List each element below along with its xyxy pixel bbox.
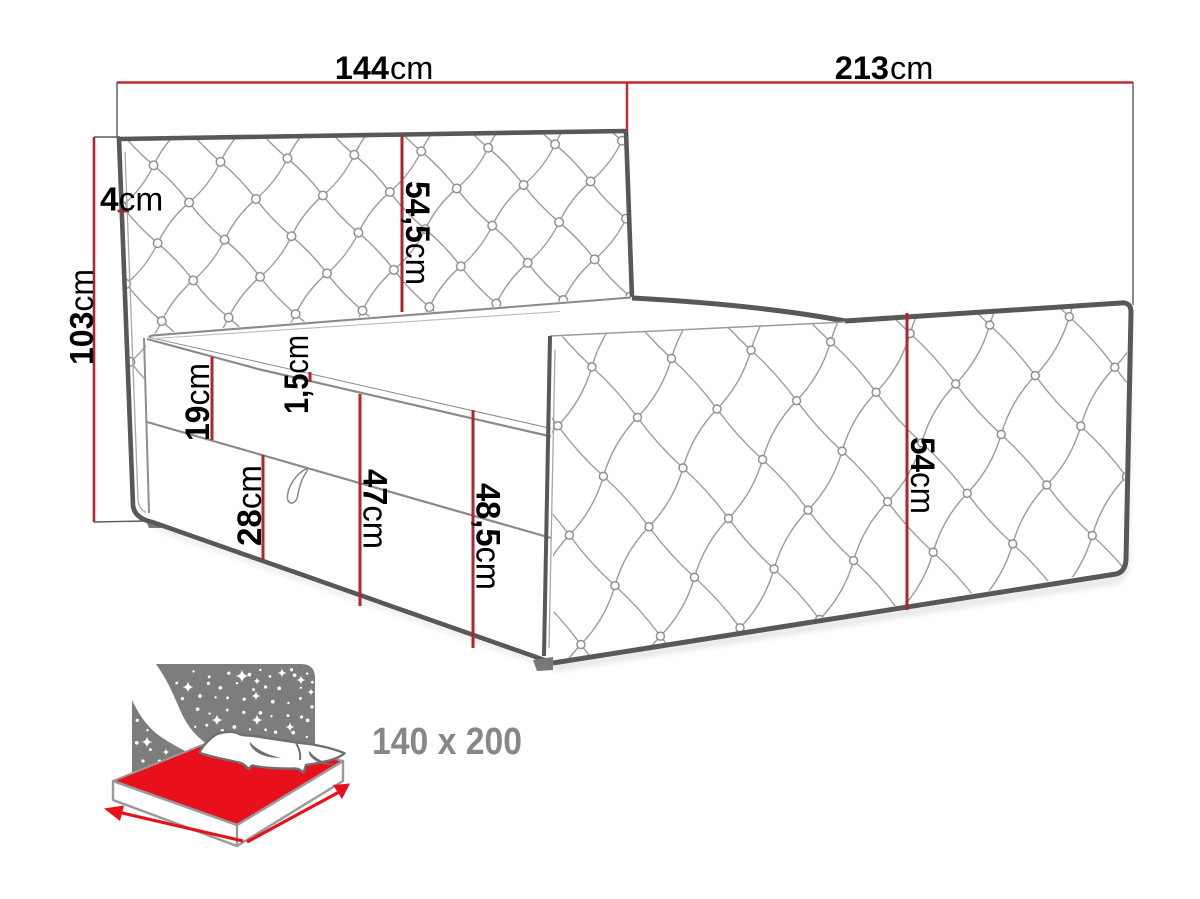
svg-text:54,5cm: 54,5cm: [398, 181, 436, 285]
svg-text:140 x 200: 140 x 200: [372, 721, 522, 763]
svg-text:1,5cm: 1,5cm: [278, 335, 316, 414]
svg-text:144: 144: [335, 50, 389, 86]
svg-text:54cm: 54cm: [903, 437, 941, 514]
svg-text:cm: cm: [890, 50, 933, 86]
svg-text:103cm: 103cm: [63, 269, 100, 365]
svg-text:47cm: 47cm: [356, 469, 394, 549]
svg-text:4cm: 4cm: [100, 182, 163, 219]
svg-text:cm: cm: [390, 50, 433, 86]
svg-text:213: 213: [835, 50, 889, 86]
svg-text:48,5cm: 48,5cm: [469, 483, 507, 590]
svg-text:28cm: 28cm: [231, 465, 269, 546]
svg-text:19cm: 19cm: [179, 363, 217, 441]
